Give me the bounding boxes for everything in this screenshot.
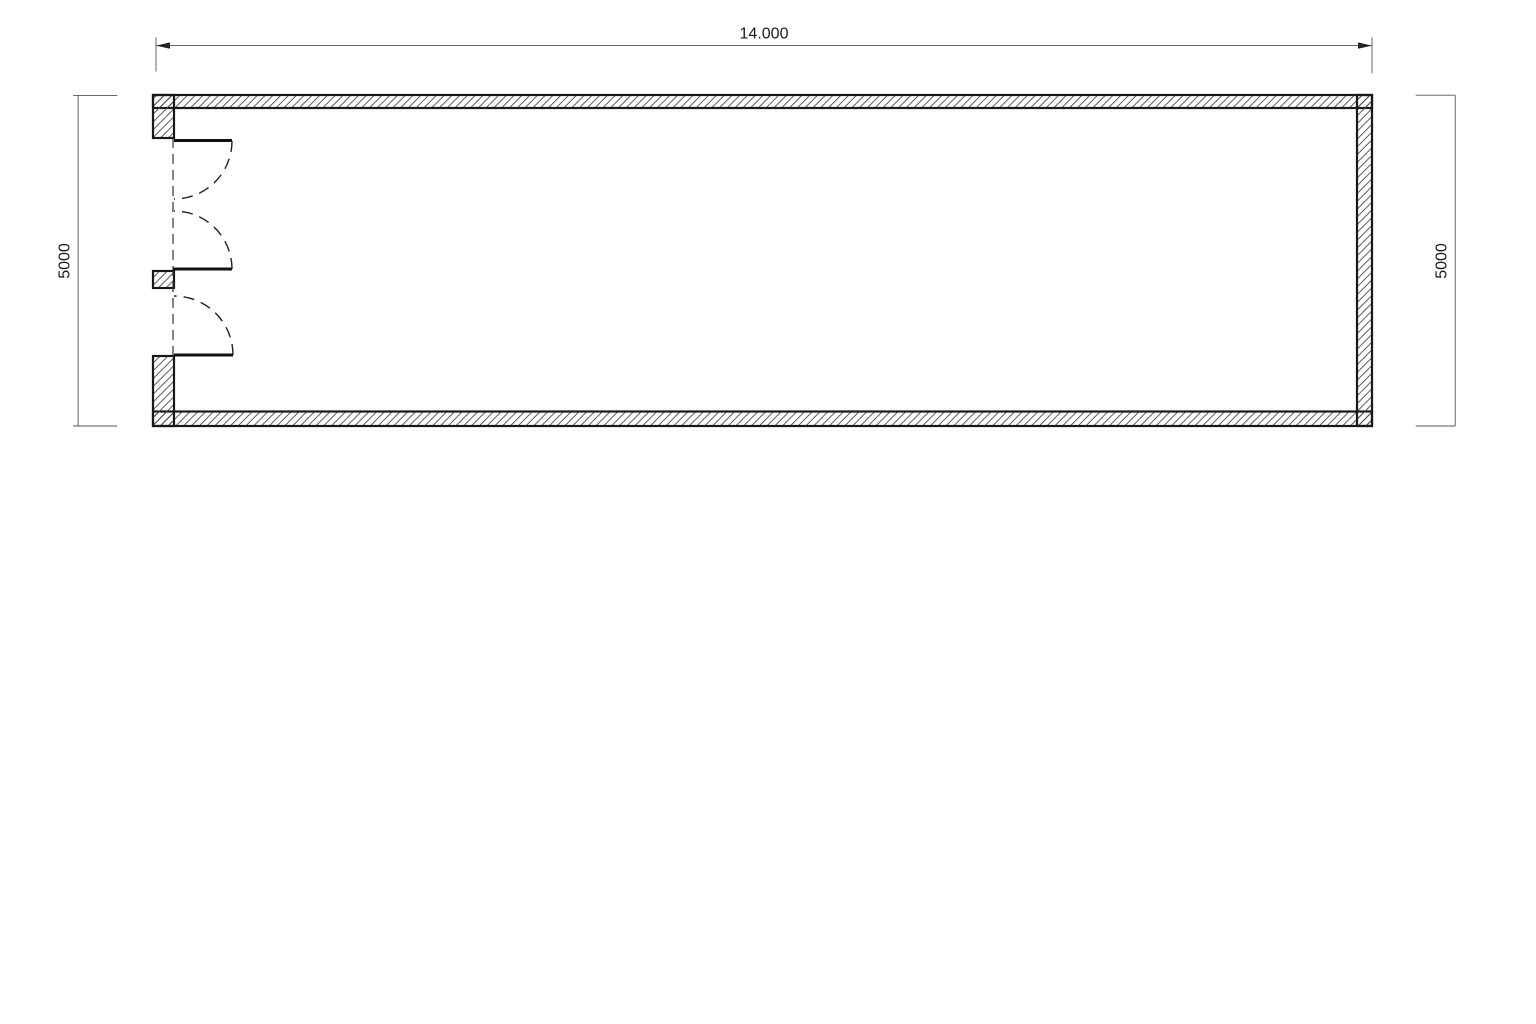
svg-text:5000: 5000: [57, 243, 74, 279]
svg-text:5000: 5000: [1434, 243, 1451, 279]
svg-text:14.000: 14.000: [740, 26, 789, 43]
